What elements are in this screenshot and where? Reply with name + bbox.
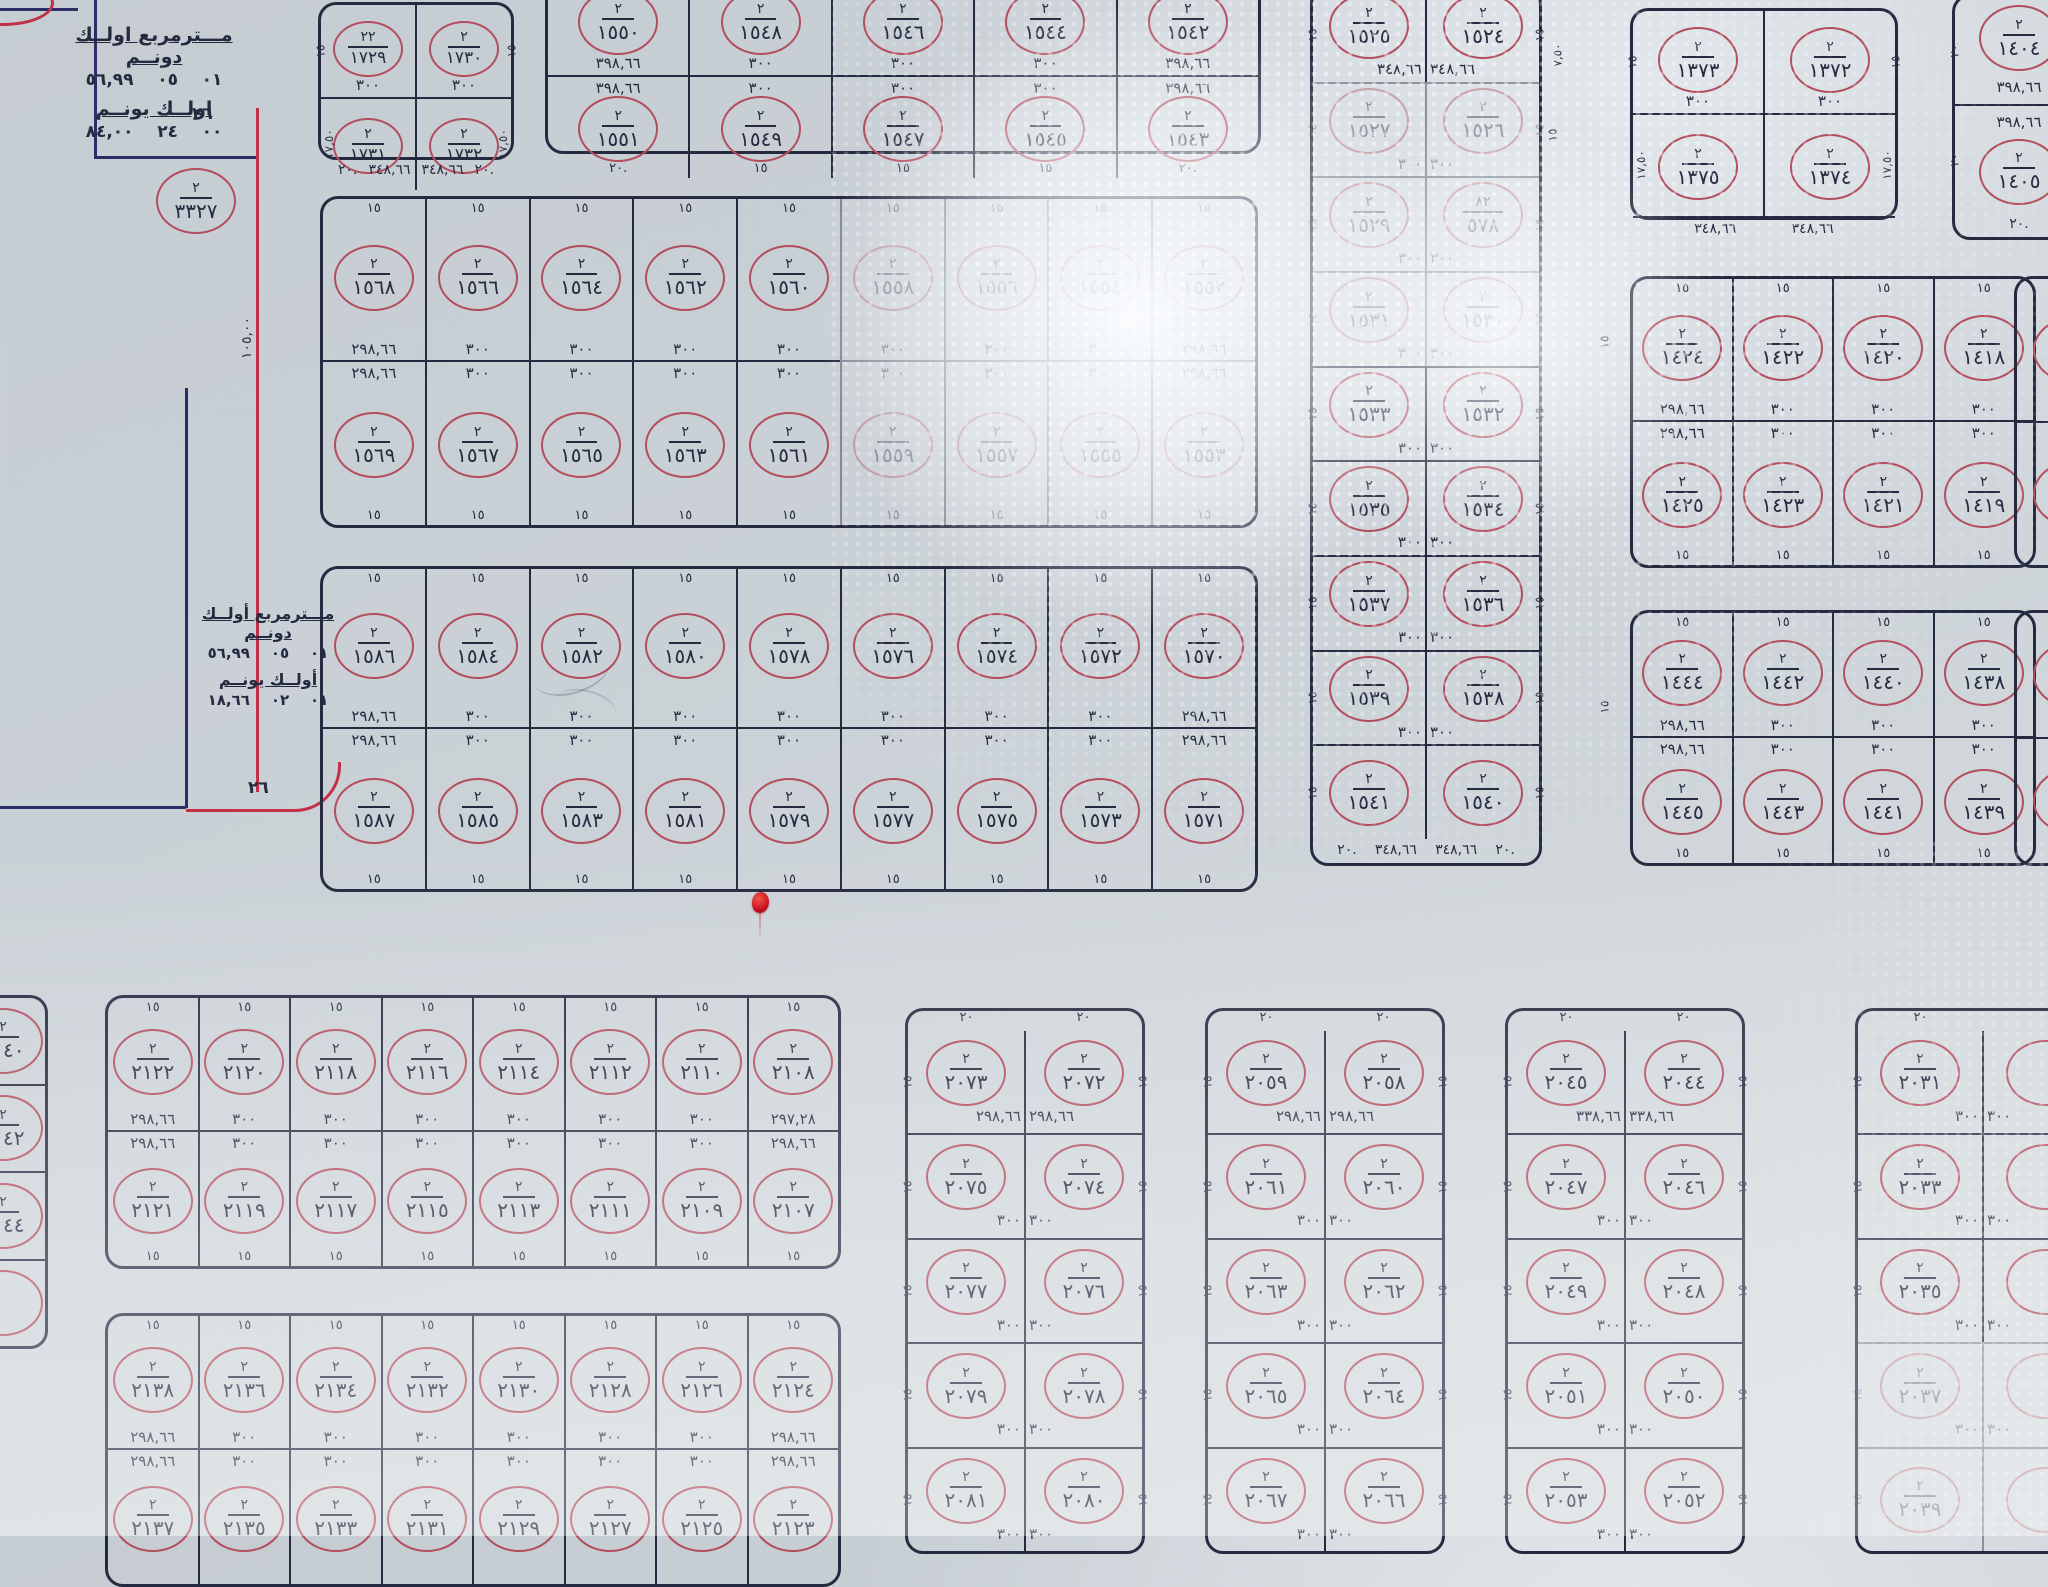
plot-block-number: ٢ [462,790,494,808]
plot-block-number: ٢ [1250,1157,1282,1175]
plot-cell: ١٥٢١٥٤٢٣٩٨,٦٦ [1116,0,1258,77]
plot-block-number: ٢ [745,109,777,127]
plot-cell: ١٥٢١٤٢٤٢٩٨,٦٦ [1633,279,1732,422]
plot-cell: ١٥٢١٥٤٦٣٠٠ [831,0,973,77]
plot-circle: ٢١٥٤٢ [1148,0,1228,55]
plot-cell: ٢١٥٣٣٣٠٠١٥ [1313,368,1425,461]
plot-number-١٤٢٤: ١٤٢٤ [1661,345,1704,368]
plot-number-١٥٥٧: ١٥٥٧ [975,443,1018,466]
depth-dim: ٣٠٠ [1033,55,1057,72]
plot-number-١٤٤٢: ١٤٤٢ [1761,670,1804,693]
plot-block-number: ٢ [1368,1366,1400,1384]
plot-circle: ٢٢١٠٨ [753,1029,833,1095]
side-dim: ١٥ [1850,1180,1864,1193]
top-edge-dim: ١٥ [146,1319,160,1332]
plot-circle: ٢٢١٢٩ [479,1486,559,1552]
plot-circle: ٢١٥٥٦ [957,245,1037,311]
plot-circle: ٢١٥٦٢ [645,245,725,311]
plot-row: ٢٢١٤٢ [0,1084,45,1172]
plot-row: ٢٢٠٧٧٣٠٠١٥٢٢٠٧٦٣٠٠١٥ [908,1238,1142,1342]
plot-cell: ٢١٥٢٤٣٤٨,٦٦١٥ [1425,0,1539,82]
plot-cell: ١٥٢١٧٣٠٣٠٠١٥ [415,5,511,99]
plot-circle: ٢٢٠٦٠ [1344,1144,1424,1210]
red-marker-dot [752,892,769,913]
plot-row: ٢١٥٣٥٣٠٠١٥٢١٥٣٤٣٠٠١٥ [1313,460,1539,555]
depth-dim: ٢٩٨,٦٦ [1660,717,1705,734]
top-edge-dim: ١٥ [574,572,588,585]
plot-cell: ٢٢٠٧٧٣٠٠١٥ [908,1240,1024,1342]
depth-dim: ٣٠٠ [1329,1317,1353,1334]
plot-block-number: ٢ [1353,668,1385,686]
side-dim: ١٥ [1200,1180,1214,1193]
plot-number-٢١٢٤: ٢١٢٤ [772,1378,815,1401]
plot-number-١٥٢٤: ١٥٢٤ [1462,24,1505,47]
plot-block-number: ٢ [1668,1470,1700,1488]
plot-circle: ٢١٥٣٣ [1329,372,1409,438]
plot-cell: ٣٠٠٢٢١٢٧١٥ [564,1450,656,1584]
plot-cell: ٢٢٠٦٤٣٠٠١٥ [1324,1344,1442,1446]
plot-number-١٥٦٧: ١٥٦٧ [456,443,499,466]
plot-row: ٢١٥٢٥٣٤٨,٦٦١٥٢١٥٢٤٣٤٨,٦٦١٥ [1313,0,1539,82]
depth-dim: ٣٠٠ [507,1135,531,1152]
plot-cell: ٢٢٠٦٢٣٠٠١٥ [1324,1240,1442,1342]
plot-circle: ٢٢١٣٣ [296,1486,376,1552]
depth-dim: ٢٩٨,٦٦ [351,341,396,358]
plot-cell: ٢٩٨,٦٦٢٢١٢٣١٥ [747,1450,839,1584]
block-bottom-dims: ٢٠.٣٤٨,٦٦٣٤٨,٦٦٢٠. [321,159,511,183]
plot-block-number: ٢ [320,1180,352,1198]
depth-dim: ٣٠٠ [324,1453,348,1470]
depth-dim: ٣٠٠ [984,708,1008,725]
plot-number-١٣٧٥: ١٣٧٥ [1677,165,1720,188]
depth-dim: ٣٠٠ [1430,534,1454,551]
plot-circle: ٢٢٠٧٣ [926,1040,1006,1106]
plot-number-١٧٣٠: ١٧٣٠ [446,48,483,68]
plot-number-٢٠٦٧: ٢٠٦٧ [1245,1488,1288,1511]
depth-dim: ٢٩٨,٦٦ [771,1429,816,1446]
area-summary-note-parcel: مـــترمربع أولــك دونــم ٠١ ٠٥ ٥٦,٩٩ أول… [192,596,344,709]
plot-row: ٢٢١٤٠ [0,998,45,1084]
plot-circle [2033,317,2048,383]
plot-circle: ٢٢١٢٦ [662,1347,742,1413]
side-dim: ١٥ [900,1389,914,1402]
plot-row: ٢٢٠٣٩١٥١٥ [1858,1447,2048,1551]
city-block-2122: ١٥٢٢١٢٢٢٩٨,٦٦١٥٢٢١٢٠٣٠٠١٥٢٢١١٨٣٠٠١٥٢٢١١٦… [105,995,841,1269]
plot-circle: ٢١٥٤٩ [721,96,801,162]
top-edge-dim: ٢٠ [908,1011,1025,1031]
plot-block-number: ٢ [2003,151,2035,169]
plot-circle: ٢١٤٤٠ [1843,640,1923,706]
plot-circle: ٢٢٠٨١ [926,1458,1006,1524]
plot-cell: ٣٠٠١٥ [1982,1344,2048,1446]
plot-block-number: ٢ [1250,1366,1282,1384]
bottom-edge-dim: ١٥ [896,162,910,175]
plot-block-number: ٢ [1968,475,2000,493]
plot-cell: ١٥٢١٥٨٤٣٠٠ [425,569,529,729]
depth-dim: ٣٠٠ [673,365,697,382]
plot-circle: ٢٢٠٣٧ [1880,1353,1960,1419]
plot-number-١٥٧١: ١٥٧١ [1183,808,1226,831]
plot-block-number: ٢ [320,1042,352,1060]
plot-block-number: ٢ [566,257,598,275]
plot-row: ٢١٥٢٧٣٠٠١٥٢١٥٢٦٣٠٠١٥ [1313,82,1539,177]
plot-block-number: ٢ [1550,1261,1582,1279]
plot-number-١٣٧٣: ١٣٧٣ [1677,58,1720,81]
plot-cell: ١٥٢١٥٧٨٣٠٠ [736,569,840,729]
plot-block-number: ٢ [1068,1261,1100,1279]
plot-number-١٤٢٣: ١٤٢٣ [1761,493,1804,516]
plot-circle: ٢٢٠٧٥ [926,1144,1006,1210]
plot-circle: ٢١٥٤١ [1329,760,1409,826]
side-dim: ١٥ [1436,1285,1450,1298]
depth-dim: ٣٠٠ [891,55,915,72]
depth-dim: ٣٠٠ [1297,1212,1321,1229]
plot-row: ٢٢٠٣٥٣٠٠١٥٣٠٠١٥ [1858,1238,2048,1342]
plot-circle: ٢١٥٥١ [578,96,658,162]
plot-cell: ٢١٥٣٠٣٠٠١٥ [1425,273,1539,366]
side-dim: ١٥ [1200,1493,1214,1506]
city-block-2138: ١٥٢٢١٣٨٢٩٨,٦٦١٥٢٢١٣٦٣٠٠١٥٢٢١٣٤٣٠٠١٥٢٢١٣٢… [105,1313,841,1587]
plot-block-number: ٢ [594,1042,626,1060]
plot-block-number: ٢ [358,257,390,275]
plot-block-number: ٢ [877,257,909,275]
plot-circle: ٢١٥٣٦ [1443,561,1523,627]
plot-circle: ٢٢٠٨٠ [1044,1458,1124,1524]
bottom-edge-dim: ١٥ [678,873,692,886]
plot-block-number: ٢ [1188,257,1220,275]
side-dim: ١٥ [1305,124,1319,137]
plot-circle [2006,1467,2048,1533]
side-dim: ١٥ [1850,1285,1864,1298]
plot-number-٢٠٥٠: ٢٠٥٠ [1663,1384,1706,1407]
dim-label: ٣٤٨,٦٦ [421,163,463,178]
depth-dim: ٣٠٠ [507,1453,531,1470]
side-dim: ١٥ [1736,1389,1750,1402]
plot-block-number: ٢ [358,626,390,644]
plot-block-number: ٢ [137,1498,169,1516]
note-heading: أولــك يونــم [192,670,344,689]
city-block-1438: ١٥٢١٤٤٤٢٩٨,٦٦١٥٢١٤٤٢٣٠٠١٥٢١٤٤٠٣٠٠١٥٢١٤٣٨… [1630,610,2036,866]
plot-cell: ١٥٢٢١١٨٣٠٠ [289,998,381,1132]
top-edge-dim: ١٥ [237,1319,251,1332]
depth-dim: ٢٩٨,٦٦ [1182,341,1227,358]
plot-block-number: ٢ [411,1042,443,1060]
top-edge-dim: ١٥ [786,1001,800,1014]
depth-dim: ٣٠٠ [569,732,593,749]
plot-circle: ٢١٥٥٥ [1060,412,1140,478]
bottom-edge-dim: ١٥ [329,1250,343,1263]
bottom-edge-dim: ١٥ [1977,847,1991,860]
depth-dim: ٣٠٠ [1398,345,1422,362]
plot-number-٢٠٨١: ٢٠٨١ [945,1488,988,1511]
plot-block-number: ٢ [411,1360,443,1378]
plot-block-number: ٢ [1353,290,1385,308]
plot-circle: ٢٢١١١ [570,1168,650,1234]
plot-row: ٢٢٠٣٧٣٠٠١٥٣٠٠١٥ [1858,1342,2048,1446]
plot-cell: ٢٢٠٧٦٣٠٠١٥ [1024,1240,1142,1342]
side-dim: ١٥ [1850,1076,1864,1089]
city-block-1372: ١٥٢١٣٧٣٣٠٠١٥١٥٢١٣٧٢٣٠٠١٥٣٠٠٢١٣٧٥١٥١٧,٥٠٣… [1630,8,1898,220]
depth-dim: ٣٠٠ [1597,1526,1621,1543]
plot-block-number: ٢ [1068,1157,1100,1175]
depth-dim: ٣٠٠ [1955,1317,1979,1334]
plot-circle: ٢٢١١٠ [662,1029,742,1095]
plot-cell: ٢٢٠٤٥٣٣٨,٦٦١٥ [1508,1031,1624,1133]
plot-cell: ٢٢٠٧٥٣٠٠١٥ [908,1135,1024,1237]
plot-block-number: ٢ [602,109,634,127]
plot-cell: ٣٠٠٢١٥٥٥١٥ [1047,362,1151,525]
plot-block-number: ٢ [1767,652,1799,670]
depth-dim: ٢٩٨,٦٦ [976,1108,1021,1125]
top-edge-dim: ١٥ [786,1319,800,1332]
plot-circle: ٢٢٠٦٤ [1344,1353,1424,1419]
plot-row: ٢٢٠٤٧٣٠٠١٥٢٢٠٤٦٣٠٠١٥ [1508,1133,1742,1237]
top-edge-dim: ١٥ [886,572,900,585]
plot-block-number: ٢ [777,1498,809,1516]
plot-number-٢١١٥: ٢١١٥ [406,1198,449,1221]
depth-dim: ٣٠٠ [1430,440,1454,457]
side-dim: ١٥ [1200,1076,1214,1089]
plot-number-١٤٣٩: ١٤٣٩ [1962,800,2005,823]
plot-block-number: ٢ [448,30,480,48]
depth-dim: ٣٠٠ [466,708,490,725]
side-dim: ١٥ [1136,1076,1150,1089]
depth-dim: ٣٠٠ [1629,1421,1653,1438]
plot-number-١٥٥٨: ١٥٥٨ [871,275,914,298]
plot-block-number: ٢ [566,790,598,808]
plot-cell: ١٥٢١٥٨٠٣٠٠ [632,569,736,729]
plot-cell: ٣٠٠٢٢١٣٣١٥ [289,1450,381,1584]
plot-circle: ٢١٥٣٩ [1329,656,1409,722]
plot-number-١٥٦٢: ١٥٦٢ [664,275,707,298]
plot-number-٥٧٨: ٥٧٨ [1467,213,1499,236]
depth-dim: ٣٠٠ [777,365,801,382]
plot-circle: ٢٢١٣٤ [296,1347,376,1413]
depth-dim: ٣٠٠ [1398,724,1422,741]
plot-number-١٥٣٩: ١٥٣٩ [1348,686,1391,709]
depth-dim: ٣٠٠ [1871,717,1895,734]
plot-block-number: ٢ [180,181,212,199]
plot-number-١٥٢٦: ١٥٢٦ [1462,118,1505,141]
top-edge-dim: ١٥ [367,572,381,585]
plot-circle: ٢١٥٧٤ [957,613,1037,679]
depth-dim: ٣٣٨,٦٦ [1576,1108,1621,1125]
top-edge-dim: ١٥ [1675,616,1689,629]
plot-cell: ١٥٢٢١٢٤٢٩٨,٦٦ [747,1316,839,1450]
top-edge-dim: ١٥ [1876,282,1890,295]
plot-block-number: ٢ [1188,790,1220,808]
plot-block-number: ٢ [1668,1366,1700,1384]
depth-dim: ٣٠٠ [1430,250,1454,267]
plot-block-number: ٢ [1368,1052,1400,1070]
plot-cell: ٢٩٨,٦٦٢٢١٣٧١٥ [108,1450,198,1584]
plot-cell: ١٥٢٢١٢٦٣٠٠ [655,1316,747,1450]
top-edge-dim: ١٥ [782,202,796,215]
plot-circle: ٢٢٠٣٣ [1880,1144,1960,1210]
plot-number-٢١٠٨: ٢١٠٨ [772,1060,815,1083]
plot-circle [0,1270,43,1336]
bottom-edge-dim: ٢٠. [1179,162,1197,175]
depth-dim: ٣٠٠ [415,1135,439,1152]
plot-number-٢١٣٨: ٢١٣٨ [131,1378,174,1401]
plot-block-number: ٢ [877,425,909,443]
depth-dim: ٢٩٧,٢٨ [771,1111,816,1128]
plot-circle: ٢١٥٤٣ [1148,96,1228,162]
depth-dim: ٣٠٠ [232,1111,256,1128]
city-block-2030: ٢٠٢٢٠٣١٣٠٠١٥٣٠٠١٥٢٢٠٣٣٣٠٠١٥٣٠٠١٥٢٢٠٣٥٣٠٠… [1855,1008,2048,1554]
plot-cell: ٣٠٠٢١٥٧٥١٥ [944,729,1048,889]
plot-number-٢٠٤٤: ٢٠٤٤ [1663,1070,1706,1093]
depth-dim: ٢٩٨,٦٦ [771,1453,816,1470]
plot-row: ٢٢٠٧٣٢٩٨,٦٦١٥٢٢٠٧٢٢٩٨,٦٦١٥ [908,1031,1142,1133]
plot-number-١٥٢٩: ١٥٢٩ [1348,213,1391,236]
plot-cell: ١٥٢١٣٧٣٣٠٠١٥ [1633,11,1763,115]
plot-number-١٤٢١: ١٤٢١ [1862,493,1905,516]
plot-block-number: ٢ [1030,109,1062,127]
plot-cell: ١٥٢١٥٦٦٣٠٠ [425,199,529,362]
plot-number-٢٠٥٣: ٢٠٥٣ [1545,1488,1588,1511]
plot-row: ٢٢٠٧٥٣٠٠١٥٢٢٠٧٤٣٠٠١٥ [908,1133,1142,1237]
plot-cell: ٢٢٠٣١٣٠٠١٥ [1858,1031,1982,1133]
plot-cell: ٢١٥٣٢٣٠٠١٥ [1425,368,1539,461]
plot-block-number: ٢٢ [348,30,387,48]
plot-cell: ٣٠٠٢١٥٥٩١٥ [840,362,944,525]
plot-block-number: ٢ [320,1360,352,1378]
plot-number-٢٠٥١: ٢٠٥١ [1545,1384,1588,1407]
depth-dim: ٣٠٠ [1987,1212,2011,1229]
plot-block-number: ٢ [777,1360,809,1378]
plot-cell: ١٥٢١٥٥٦٣٠٠ [944,199,1048,362]
plot-number-١٥٣٦: ١٥٣٦ [1462,592,1505,615]
plot-number-٢٠٥٩: ٢٠٥٩ [1245,1070,1288,1093]
top-edge-dim: ١٥ [512,1319,526,1332]
depth-dim: ٣٠٠ [997,1317,1021,1334]
plot-circle: ٢١٥٧٦ [853,613,933,679]
depth-dim: ٣٠٠ [507,1111,531,1128]
plot-number-٢١٣٦: ٢١٣٦ [223,1378,266,1401]
plot-number-٢٠٣٣: ٢٠٣٣ [1899,1175,1942,1198]
plot-cell: ٢٢٠٦٣٣٠٠١٥ [1208,1240,1324,1342]
plot-block-number: ٢ [950,1261,982,1279]
bottom-edge-dim: ١٥ [782,509,796,522]
plot-circle: ٢٢١٤٤ [0,1183,43,1249]
plot-cell: ٣٠٠١٥ [1982,1135,2048,1237]
plot-circle: ٢٢١٠٧ [753,1168,833,1234]
plot-number-١٥٨٧: ١٥٨٧ [352,808,395,831]
depth-dim: ٣٠٠ [1088,341,1112,358]
side-dim: ١٥ [1533,29,1547,42]
plot-circle: ٢١٥٢٥ [1329,0,1409,59]
plot-block-number: ٢ [950,1470,982,1488]
plot-circle: ٢١٥٦٥ [541,412,621,478]
plot-number-١٥٤٥: ١٥٤٥ [1024,127,1067,150]
plot-block-number: ٢ [320,1498,352,1516]
depth-dim: ٣٠٠ [1430,629,1454,646]
dim-label: ٣٤٨,٦٦ [1792,222,1834,237]
plot-number-٢١٠٧: ٢١٠٧ [772,1198,815,1221]
depth-dim: ٣٠٠ [1029,1526,1053,1543]
plot-number-٢٠٦٥: ٢٠٦٥ [1245,1384,1288,1407]
plot-cell: ٢٢٠٤٨٣٠٠١٥ [1624,1240,1742,1342]
plot-block-number: ٢ [669,790,701,808]
plot-block-number: ٢ [1904,1479,1936,1497]
plot-circle: ٢١٤٠٤ [1979,5,2048,71]
block-row: ٣٠٠٢١٣٧٥١٥١٧,٥٠٣٠٠٢١٣٧٤١٥١٧,٥٠ [1633,115,1895,217]
plot-number-١٥٥٦: ١٥٥٦ [975,275,1018,298]
plot-cell: ١٥٢٢١٠٨٢٩٧,٢٨ [747,998,839,1132]
depth-dim: ٣٠٠ [452,77,476,94]
plot-row: ٢١٥٤١١٥٢١٥٤٠١٥ [1313,744,1539,839]
plot-circle: ٢١٥٧٧ [853,778,933,844]
plot-circle: ٢١٥٥٤ [1060,245,1140,311]
plot-number-٢١١٠: ٢١١٠ [680,1060,723,1083]
side-dim: ١٥ [1305,786,1319,799]
plot-cell: ٢٢٠٤٧٣٠٠١٥ [1508,1135,1624,1237]
plot-number-٢٠٤٩: ٢٠٤٩ [1545,1279,1588,1302]
depth-dim: ٣٠٠ [1430,156,1454,173]
plot-cell: ١٥٢٢١١٦٣٠٠ [381,998,473,1132]
plot-number-١٥٧٥: ١٥٧٥ [975,808,1018,831]
depth-dim: ٣٩٨,٦٦ [1996,79,2041,96]
plot-block-number: ٢ [1968,327,2000,345]
note-heading: اولــك يونــم [46,98,262,120]
top-edge-dim: ٢٠ [1325,1011,1442,1031]
plot-cell: ٢٢٠٥٠٣٠٠١٥ [1624,1344,1742,1446]
depth-dim: ٣٠٠ [1629,1317,1653,1334]
plot-cell: ٢٢٠٦١٣٠٠١٥ [1208,1135,1324,1237]
plot-cell: ٣٠٠٢٢١١٣١٥ [472,1132,564,1266]
plot-block-number: ٢ [669,425,701,443]
plot-circle [2033,768,2048,834]
plot-cell: ٢٢٠٧٨٣٠٠١٥ [1024,1344,1142,1446]
bottom-edge-dim: ١٥ [420,1250,434,1263]
plot-number-١٥٧٤: ١٥٧٤ [975,644,1018,667]
depth-dim: ٣٠٠ [881,341,905,358]
plot-row: ٢٢٠٥٣٣٠٠١٥٢٢٠٥٢٣٠٠١٥ [1508,1447,1742,1551]
top-edge-dim [1983,1011,2048,1031]
plot-number-١٥٤٩: ١٥٤٩ [739,127,782,150]
plot-circle: ٢١٥٦٩ [334,412,414,478]
plot-block-number: ٢ [503,1498,535,1516]
plot-number-٢٠٥٢: ٢٠٥٢ [1663,1488,1706,1511]
bottom-edge-dim: ١٥ [678,509,692,522]
plot-cell: ١٥٢١٤٤٠٣٠٠ [1832,613,1933,738]
depth-dim: ٢٩٨,٦٦ [1329,1108,1374,1125]
top-edge-dim: ٢٠ [1625,1011,1742,1031]
top-edge-dim: ١٥ [695,1319,709,1332]
plot-circle: ٢١٥٧٥ [957,778,1037,844]
top-edge-dim: ١٥ [678,202,692,215]
plot-cell: ٣٠٠٢١٥٨١١٥ [632,729,736,889]
depth-dim: ٣٠٠ [415,1453,439,1470]
plot-circle: ٢١٤١٨ [1944,315,2024,381]
side-dim: ١٥ [1305,408,1319,421]
plot-number-٢٠٣٩: ٢٠٣٩ [1899,1497,1942,1520]
plot-circle: ٢٢٠٤٥ [1526,1040,1606,1106]
plot-block-number: ٢ [1767,782,1799,800]
plot-block-number: ٢ [1467,100,1499,118]
plot-number-١٥٤٧: ١٥٤٧ [882,127,925,150]
plot-circle: ٢١٥٥٢ [1164,245,1244,311]
depth-dim: ٢٩٨,٦٦ [1182,365,1227,382]
plot-circle: ٢١٥٧٠ [1164,613,1244,679]
plot-cell: ٢٢٠٧٣٢٩٨,٦٦١٥ [908,1031,1024,1133]
plot-cell: ١٥٢٢١١٠٣٠٠ [655,998,747,1132]
plot-circle: ٢١٥٤٦ [863,0,943,55]
top-edge-dim: ١٥ [420,1001,434,1014]
plot-cell: ١٥٢١٤٤٤٢٩٨,٦٦ [1633,613,1732,738]
plot-block-number: ٢ [669,257,701,275]
